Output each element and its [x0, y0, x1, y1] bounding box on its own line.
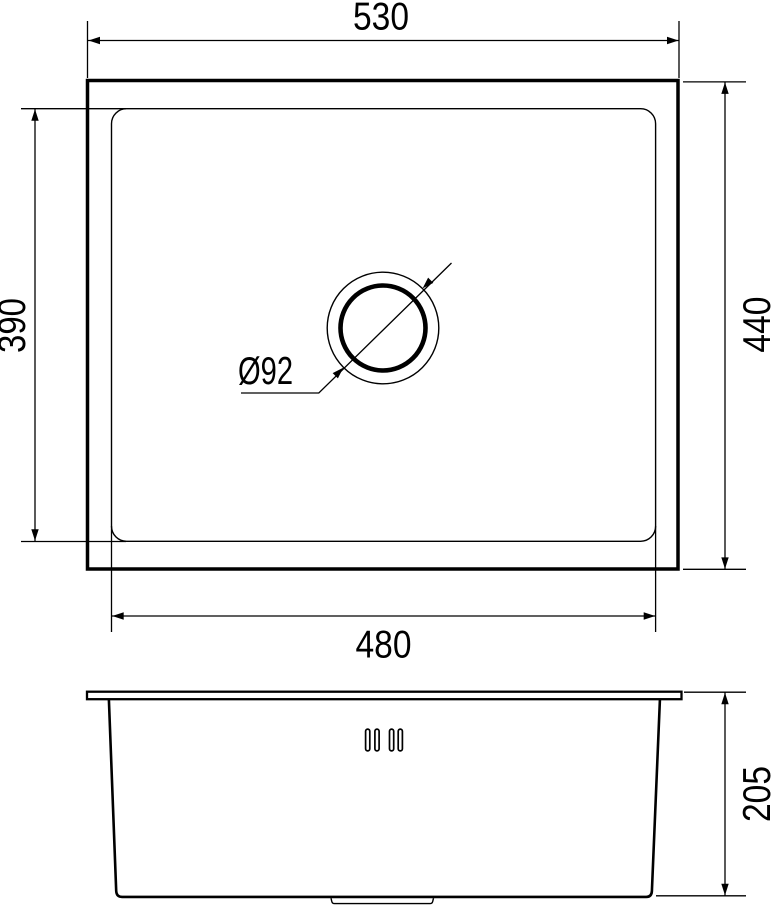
svg-text:390: 390	[0, 298, 34, 353]
svg-text:Ø92: Ø92	[238, 350, 293, 393]
svg-text:205: 205	[736, 766, 772, 822]
svg-text:530: 530	[353, 0, 409, 39]
svg-text:440: 440	[736, 297, 772, 353]
svg-text:480: 480	[356, 624, 412, 667]
